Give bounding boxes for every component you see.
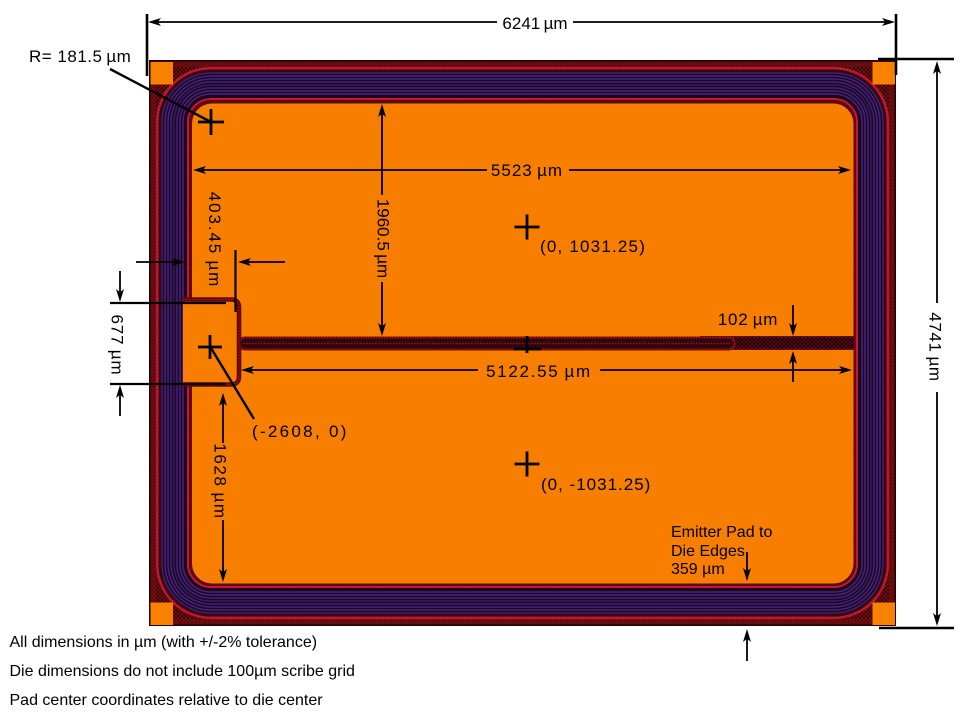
svg-text:Emitter Pad to: Emitter Pad to	[671, 524, 772, 541]
svg-text:(0, -1031.25): (0, -1031.25)	[541, 475, 651, 494]
svg-text:All dimensions in µm (with +/-: All dimensions in µm (with +/-2% toleran…	[10, 634, 318, 651]
svg-text:Die Edges: Die Edges	[671, 543, 745, 560]
svg-text:403.45 µm: 403.45 µm	[205, 192, 224, 288]
svg-text:359 µm: 359 µm	[671, 561, 725, 578]
svg-text:Pad center coordinates relativ: Pad center coordinates relative to die c…	[10, 692, 324, 709]
svg-text:1960.5 µm: 1960.5 µm	[374, 199, 393, 278]
svg-text:R= 181.5 µm: R= 181.5 µm	[29, 47, 131, 66]
svg-text:5122.55 µm: 5122.55 µm	[486, 362, 592, 381]
svg-text:Die dimensions do not include: Die dimensions do not include 100µm scri…	[10, 663, 355, 680]
svg-text:1628 µm: 1628 µm	[211, 443, 230, 519]
svg-text:5523 µm: 5523 µm	[491, 161, 563, 180]
svg-text:6241 µm: 6241 µm	[502, 14, 567, 33]
svg-text:102 µm: 102 µm	[718, 310, 779, 329]
svg-text:4741 µm: 4741 µm	[926, 312, 945, 381]
svg-text:677 µm: 677 µm	[108, 314, 127, 375]
svg-text:(0, 1031.25): (0, 1031.25)	[540, 237, 646, 256]
svg-text:(-2608, 0): (-2608, 0)	[252, 422, 349, 441]
